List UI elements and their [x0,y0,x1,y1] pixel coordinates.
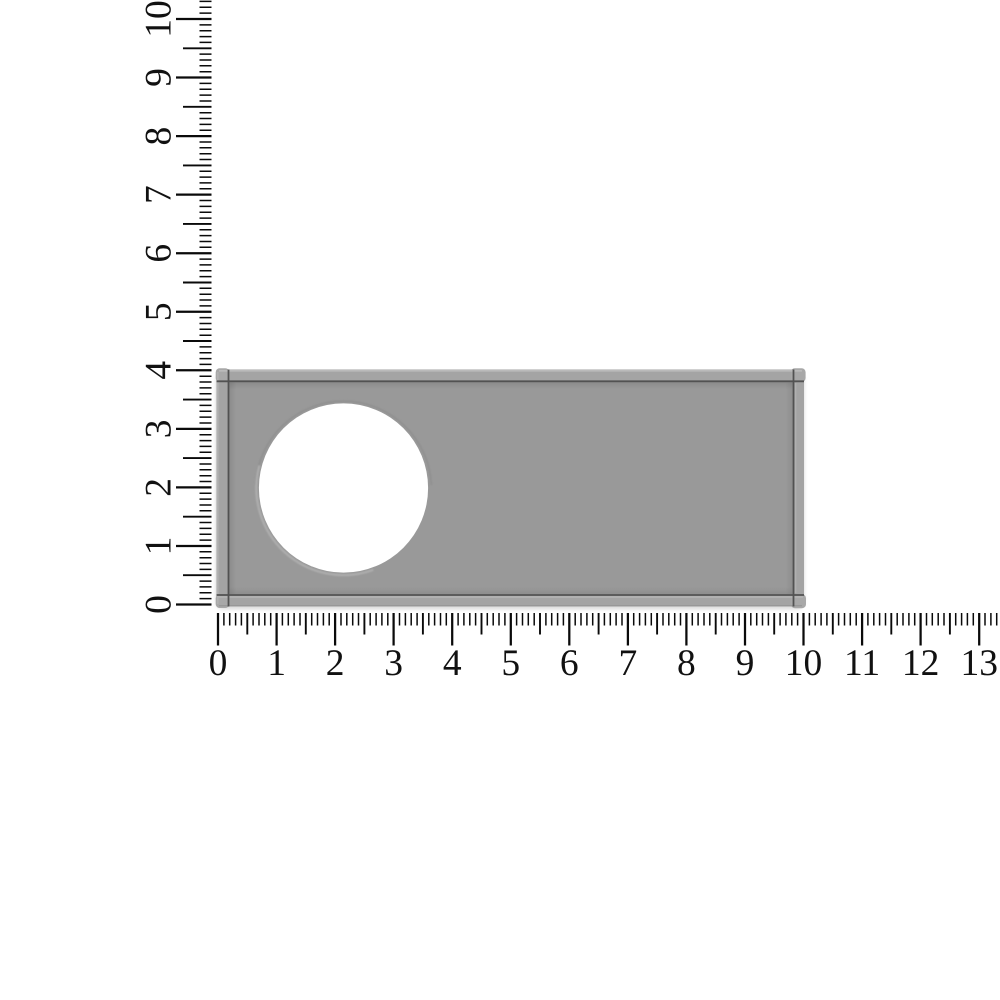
svg-text:9: 9 [736,643,755,684]
svg-text:10: 10 [785,643,823,684]
svg-text:12: 12 [902,643,940,684]
svg-text:9: 9 [139,68,180,87]
svg-text:10: 10 [139,0,180,38]
svg-text:6: 6 [139,244,180,263]
svg-text:7: 7 [619,643,638,684]
svg-text:5: 5 [501,643,520,684]
svg-text:7: 7 [139,185,180,204]
svg-text:0: 0 [209,643,228,684]
svg-text:0: 0 [139,595,180,614]
svg-text:13: 13 [960,643,998,684]
svg-text:8: 8 [677,643,696,684]
svg-text:1: 1 [267,643,286,684]
svg-text:8: 8 [139,127,180,146]
svg-text:2: 2 [326,643,345,684]
svg-text:3: 3 [384,643,403,684]
svg-text:2: 2 [139,478,180,497]
svg-text:4: 4 [139,361,180,380]
svg-text:4: 4 [443,643,462,684]
svg-text:6: 6 [560,643,579,684]
svg-text:3: 3 [139,420,180,439]
svg-text:1: 1 [139,537,180,556]
svg-text:11: 11 [844,643,880,684]
svg-text:5: 5 [139,302,180,321]
